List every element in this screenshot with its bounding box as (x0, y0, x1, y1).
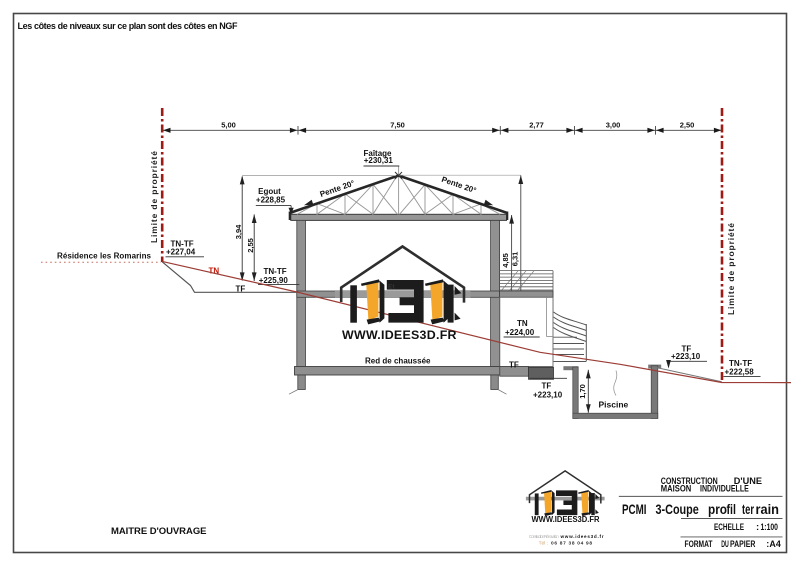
svg-text:Résidence les Romarins: Résidence les Romarins (57, 252, 152, 261)
svg-text:Red de chaussée: Red de chaussée (365, 357, 431, 366)
svg-text:MAITRE D'OUVRAGE: MAITRE D'OUVRAGE (111, 526, 207, 537)
svg-text:2,55: 2,55 (246, 238, 255, 253)
svg-text:TF: TF (542, 382, 552, 391)
svg-text:06 87 38 04 98: 06 87 38 04 98 (551, 541, 592, 547)
svg-text:PCMI: PCMI (622, 501, 647, 517)
svg-text:Limite de propriété: Limite de propriété (149, 151, 159, 243)
svg-text:Construction Rénovation: Construction Rénovation (529, 534, 559, 539)
svg-text:2,77: 2,77 (529, 121, 544, 130)
svg-text:3,00: 3,00 (606, 121, 621, 130)
svg-text:TN: TN (517, 319, 528, 328)
svg-text:FORMAT: FORMAT (685, 539, 713, 549)
svg-text:6,31: 6,31 (510, 252, 519, 267)
svg-text:7,50: 7,50 (390, 121, 405, 130)
svg-text:MAISON: MAISON (661, 484, 692, 494)
svg-text:DU: DU (721, 539, 729, 549)
svg-text:A4: A4 (769, 539, 780, 549)
svg-text:WWW.IDEES3D.FR: WWW.IDEES3D.FR (532, 515, 600, 524)
svg-text:ECHELLE: ECHELLE (714, 522, 744, 533)
svg-text:+227,04: +227,04 (166, 248, 196, 257)
svg-text::: : (756, 522, 759, 533)
svg-text:4,85: 4,85 (501, 253, 510, 268)
svg-text:www.idees3d.fr: www.idees3d.fr (560, 534, 604, 539)
svg-text:3-Coupe: 3-Coupe (656, 501, 699, 517)
svg-text:+222,58: +222,58 (725, 368, 755, 377)
svg-text:+223,10: +223,10 (671, 352, 701, 361)
svg-text:Les côtes de niveaux sur ce pl: Les côtes de niveaux sur ce plan sont de… (18, 21, 239, 31)
svg-text:+223,10: +223,10 (533, 391, 563, 400)
svg-text:fil: fil (727, 501, 737, 517)
svg-text:Limite de propriété: Limite de propriété (726, 223, 736, 315)
svg-text:5,00: 5,00 (221, 121, 236, 130)
svg-text:+230,31: +230,31 (364, 156, 394, 165)
svg-text:rain: rain (756, 501, 780, 517)
svg-text:1:100: 1:100 (761, 522, 779, 533)
svg-text:INDIVIDUELLE: INDIVIDUELLE (700, 484, 749, 494)
svg-text:1,70: 1,70 (578, 384, 587, 399)
svg-text:Piscine: Piscine (599, 400, 629, 410)
svg-text:3,94: 3,94 (234, 224, 243, 239)
svg-text:TN-TF: TN-TF (264, 267, 287, 276)
svg-text:WWW.IDEES3D.FR: WWW.IDEES3D.FR (342, 328, 457, 342)
svg-text:2,50: 2,50 (680, 121, 695, 130)
svg-text:pro: pro (708, 501, 727, 517)
svg-text:Tél :: Tél : (539, 541, 548, 547)
svg-text:PAPIER: PAPIER (730, 539, 756, 549)
svg-text:ter: ter (742, 501, 754, 517)
svg-text:Et: Et (388, 284, 395, 291)
svg-text:TF: TF (509, 361, 519, 370)
svg-text:+228,85: +228,85 (256, 196, 286, 205)
svg-text:+224,00: +224,00 (505, 328, 535, 337)
